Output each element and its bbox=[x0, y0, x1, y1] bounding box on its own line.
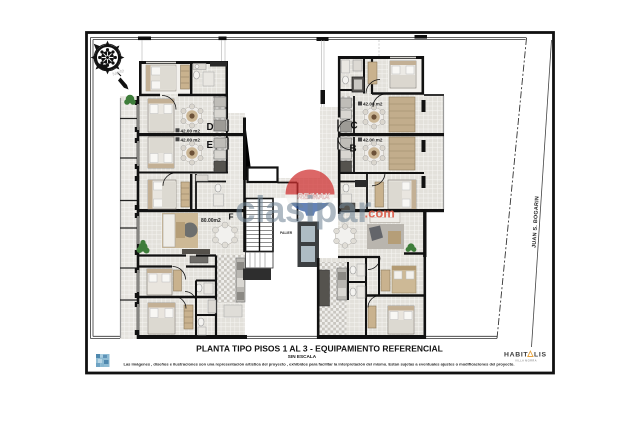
svg-text:.com: .com bbox=[365, 206, 395, 221]
svg-text:E: E bbox=[207, 140, 214, 151]
svg-text:PALIER: PALIER bbox=[280, 231, 293, 235]
svg-text:F: F bbox=[229, 213, 234, 222]
svg-text:D: D bbox=[207, 122, 214, 133]
svg-text:80.00m2: 80.00m2 bbox=[201, 218, 221, 224]
svg-text:VILLA MORRA: VILLA MORRA bbox=[515, 359, 537, 363]
svg-text:42.00 m2: 42.00 m2 bbox=[181, 128, 201, 133]
svg-text:C: C bbox=[351, 121, 358, 132]
svg-text:HABIT: HABIT bbox=[504, 352, 528, 359]
svg-text:SIN ESCALA: SIN ESCALA bbox=[288, 354, 317, 359]
svg-text:B: B bbox=[350, 144, 357, 155]
svg-text:42.00 m2: 42.00 m2 bbox=[181, 137, 201, 142]
svg-text:PLANTA TIPO PISOS 1 AL 3 - EQU: PLANTA TIPO PISOS 1 AL 3 - EQUIPAMIENTO … bbox=[196, 343, 443, 353]
svg-text:LIS: LIS bbox=[534, 352, 547, 359]
svg-text:Las imágenes , diseños e ilust: Las imágenes , diseños e ilustraciones s… bbox=[124, 361, 515, 366]
svg-text:clasipar: clasipar bbox=[235, 189, 371, 230]
